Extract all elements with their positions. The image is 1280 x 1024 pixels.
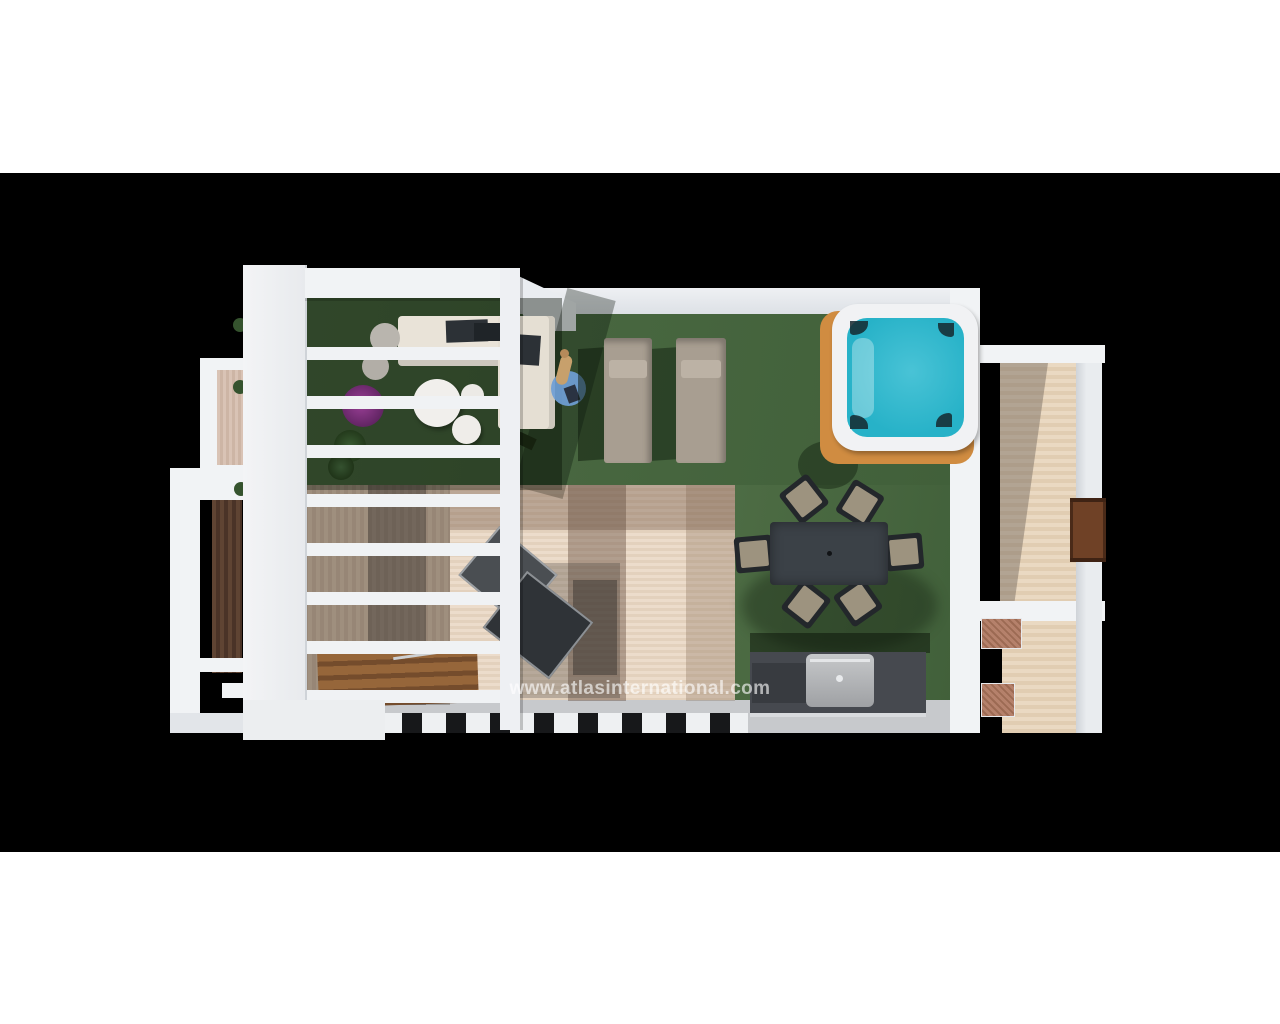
balcony-window-dark [212,500,242,673]
sun-lounger-2 [676,338,726,463]
pergola-left-column [243,265,307,735]
dining-table-hole [827,551,832,556]
watermark-text: www.atlasinternational.com [0,678,1280,700]
chair-seat [739,540,769,568]
right-deck-upper [1000,363,1076,603]
photo-black-band: www.atlasinternational.com [0,173,1280,852]
lounger-1-pillow [609,360,647,378]
dining-chair-right [884,532,925,571]
chair-seat [842,485,879,523]
chair-seat [839,583,876,621]
brick-planter-1 [981,618,1022,649]
pergola-bottom-wall [243,700,385,740]
hot-tub-seat-ledge [852,338,874,418]
storage-door [1070,498,1106,562]
chair-seat [889,538,919,566]
balcony-bottom-piece [170,713,245,733]
balcony-low-bar [198,658,243,672]
person-head [560,349,569,358]
bbq-grill-handle [810,659,870,662]
bottom-railing [378,713,748,733]
chair-seat [785,480,823,518]
pergola-top-beam [305,268,520,298]
right-deck-top-wall [978,345,1105,363]
pergola-slats [307,311,500,706]
sun-lounger-1 [604,338,652,463]
dining-chair-left [734,534,775,573]
pergola-right-column [500,268,520,730]
lounger-2-pillow [681,360,721,378]
